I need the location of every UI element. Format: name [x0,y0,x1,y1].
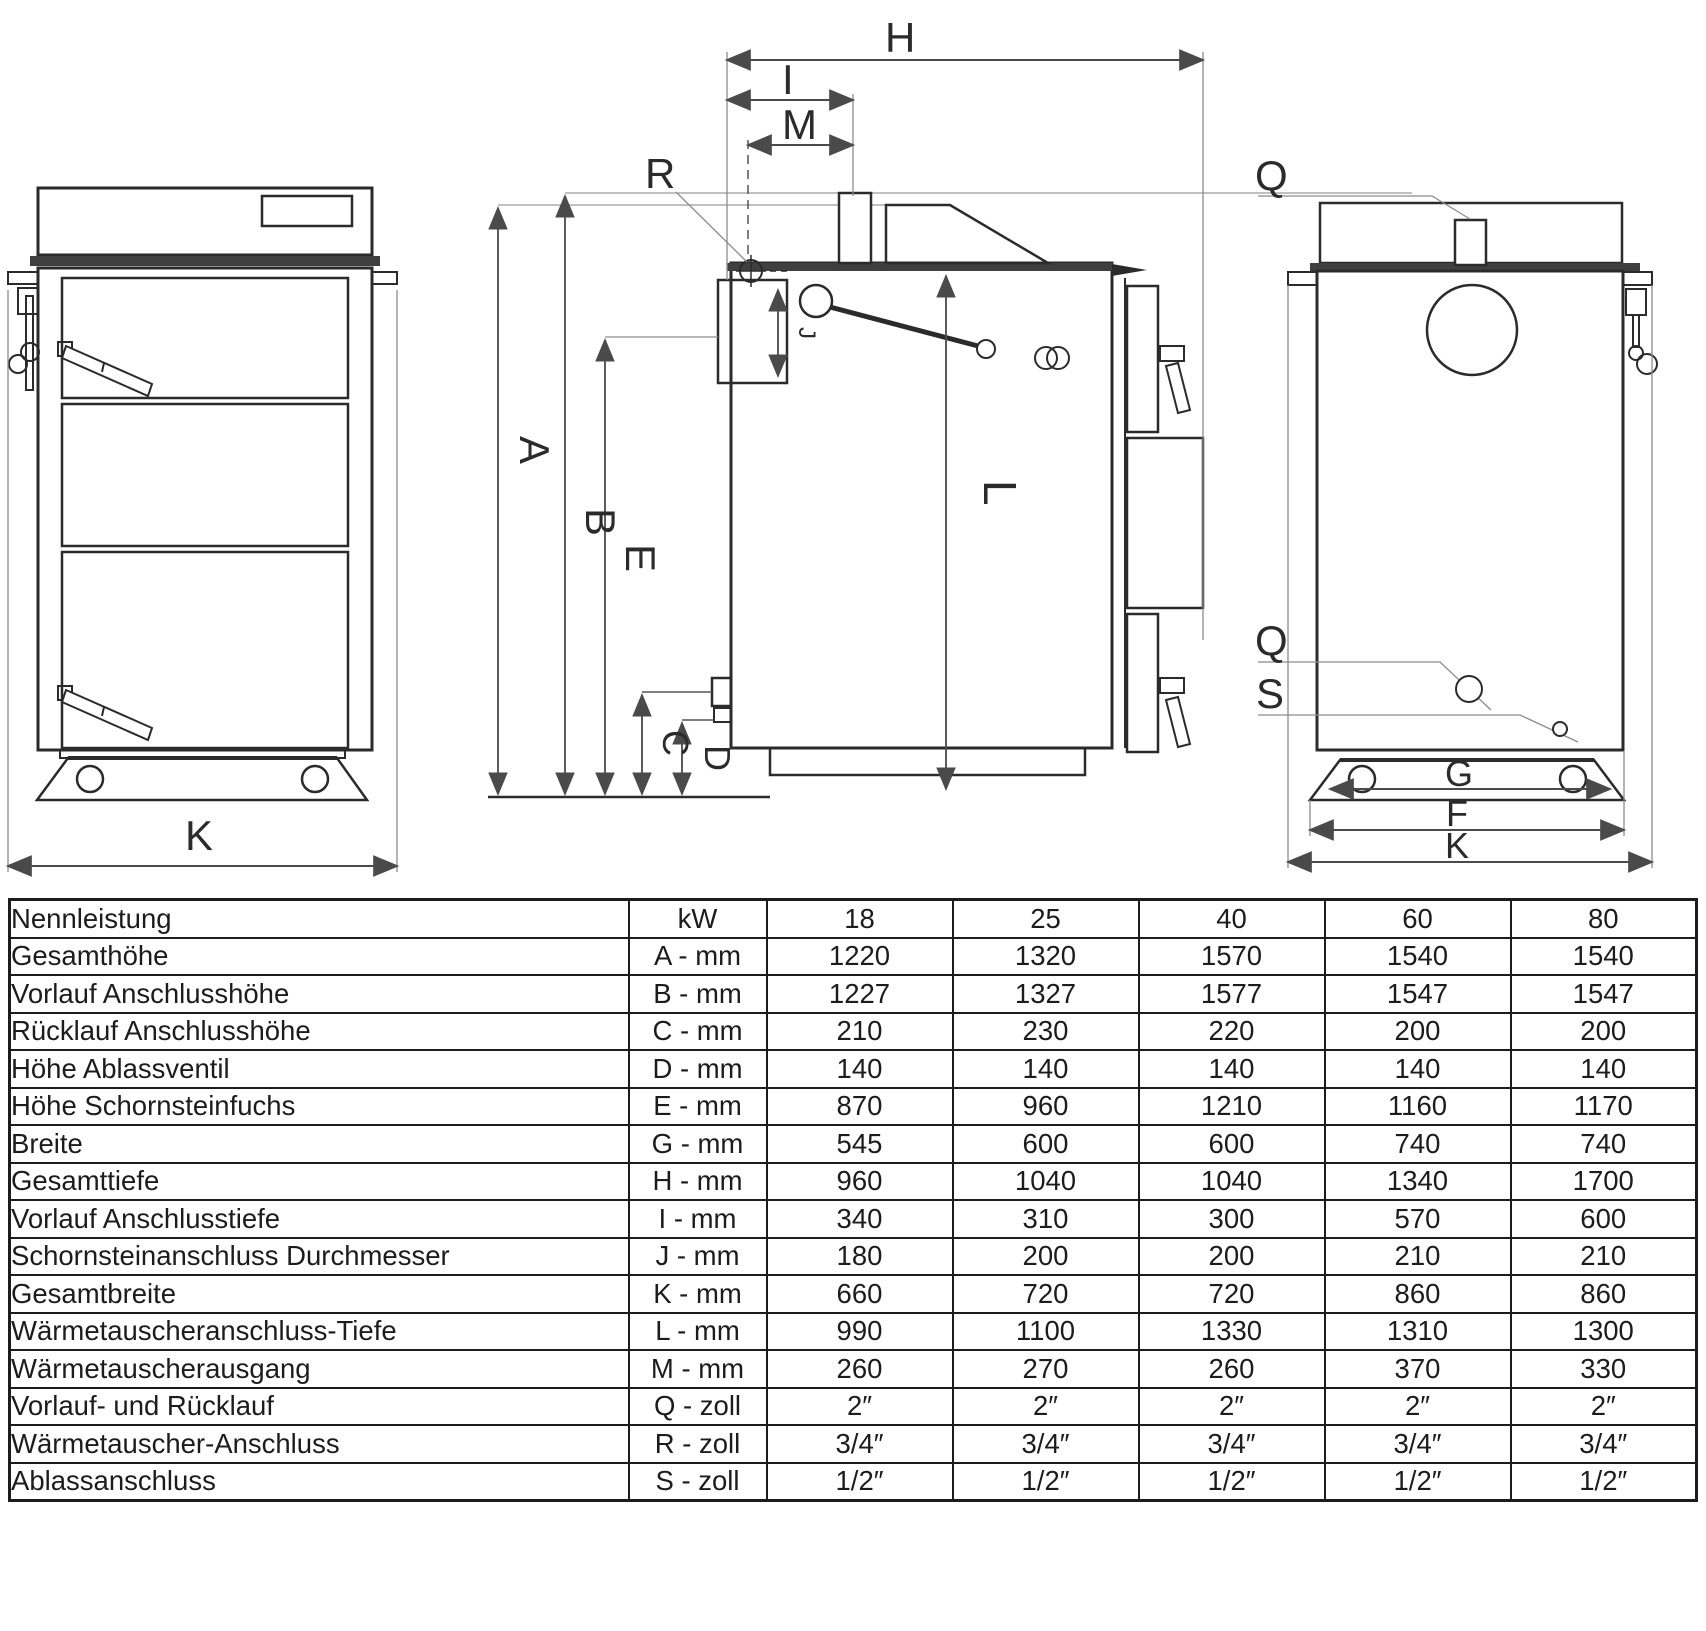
spec-label-cell: Breite [10,1125,629,1163]
spec-value-cell: 310 [953,1200,1139,1238]
table-row: BreiteG - mm545600600740740 [10,1125,1697,1163]
spec-label-cell: Vorlauf- und Rücklauf [10,1388,629,1426]
spec-value-cell: 1/2″ [1325,1463,1511,1501]
spec-value-cell: 1170 [1511,1088,1697,1126]
spec-value-cell: 870 [767,1088,953,1126]
spec-unit-cell: R - zoll [629,1425,767,1463]
front-top-cap [38,188,372,255]
dim-label-q-top: Q [1255,152,1288,199]
spec-label-cell: Wärmetauscherausgang [10,1350,629,1388]
rear-tab-left [1288,272,1317,285]
leader-Q-top [1258,196,1470,219]
spec-value-cell: 210 [1511,1238,1697,1276]
spec-value-cell: 1040 [1139,1163,1325,1201]
spec-value-cell: 1327 [953,975,1139,1013]
spec-value-cell: 570 [1325,1200,1511,1238]
spec-unit-cell: Q - zoll [629,1388,767,1426]
dim-label-b: B [577,508,624,536]
drain-connection [1553,722,1567,736]
spec-unit-cell: S - zoll [629,1463,767,1501]
table-row: Wärmetauscher-AnschlussR - zoll3/4″3/4″3… [10,1425,1697,1463]
spec-label-cell: Gesamtbreite [10,1275,629,1313]
side-pedestal [770,748,1085,775]
spec-value-cell: 210 [767,1013,953,1051]
spec-unit-cell: G - mm [629,1125,767,1163]
side-door-bottom [1127,614,1158,752]
technical-datasheet: K [0,0,1706,1631]
header-label: Nennleistung [10,900,629,938]
dim-label-q-bottom: Q [1255,617,1288,664]
spec-value-cell: 1570 [1139,938,1325,976]
dim-label-g: G [1445,753,1473,794]
spec-value-cell: 3/4″ [953,1425,1139,1463]
spec-value-cell: 1300 [1511,1313,1697,1351]
table-header-row: Nennleistung kW 18 25 40 60 80 [10,900,1697,938]
vorlauf-stub-rear [1455,220,1486,265]
spec-label-cell: Wärmetauscher-Anschluss [10,1425,629,1463]
spec-value-cell: 1/2″ [1511,1463,1697,1501]
front-base-hole-right [302,766,328,792]
spec-value-cell: 270 [953,1350,1139,1388]
header-unit: kW [629,900,767,938]
dim-label-k-rear: K [1445,825,1469,866]
spec-value-cell: 1100 [953,1313,1139,1351]
spec-value-cell: 600 [1511,1200,1697,1238]
dim-label-k-front: K [185,812,213,859]
spec-unit-cell: C - mm [629,1013,767,1051]
spec-value-cell: 140 [767,1050,953,1088]
table-row: GesamtbreiteK - mm660720720860860 [10,1275,1697,1313]
header-kw-value: 40 [1139,900,1325,938]
spec-value-cell: 260 [1139,1350,1325,1388]
vorlauf-stub-side [839,193,871,263]
front-base-hole-left [77,766,103,792]
dim-label-m: M [782,101,817,148]
boiler-dimension-drawing: K [0,0,1706,893]
spec-value-cell: 1330 [1139,1313,1325,1351]
spec-value-cell: 3/4″ [767,1425,953,1463]
flue-opening [1427,285,1517,375]
front-body [38,268,372,750]
spec-value-cell: 1227 [767,975,953,1013]
header-kw-value: 80 [1511,900,1697,938]
spec-value-cell: 1/2″ [953,1463,1139,1501]
spec-value-cell: 1540 [1511,938,1697,976]
spec-value-cell: 210 [1325,1238,1511,1276]
spec-value-cell: 1340 [1325,1163,1511,1201]
ruecklauf-connection [1456,676,1482,702]
damper-lever [800,285,995,358]
spec-unit-cell: A - mm [629,938,767,976]
table-row: Schornsteinanschluss DurchmesserJ - mm18… [10,1238,1697,1276]
spec-value-cell: 1577 [1139,975,1325,1013]
leader-S [1258,715,1578,742]
spec-value-cell: 1/2″ [767,1463,953,1501]
spec-unit-cell: B - mm [629,975,767,1013]
spec-label-cell: Rücklauf Anschlusshöhe [10,1013,629,1051]
table-row: GesamttiefeH - mm9601040104013401700 [10,1163,1697,1201]
control-panel [262,196,352,226]
dim-label-j: J [793,327,820,339]
spec-value-cell: 1700 [1511,1163,1697,1201]
spec-value-cell: 2″ [953,1388,1139,1426]
spec-value-cell: 3/4″ [1511,1425,1697,1463]
front-door-top [62,278,348,398]
spec-label-cell: Vorlauf Anschlusshöhe [10,975,629,1013]
spec-unit-cell: I - mm [629,1200,767,1238]
table-row: Höhe AblassventilD - mm140140140140140 [10,1050,1697,1088]
leader-R [676,192,747,262]
dim-label-c: C [655,730,696,756]
spec-value-cell: 860 [1511,1275,1697,1313]
spec-value-cell: 545 [767,1125,953,1163]
table-row: Vorlauf AnschlusstiefeI - mm340310300570… [10,1200,1697,1238]
table-row: Höhe SchornsteinfuchsE - mm8709601210116… [10,1088,1697,1126]
spec-value-cell: 1547 [1325,975,1511,1013]
spec-value-cell: 660 [767,1275,953,1313]
table-row: Vorlauf AnschlusshöheB - mm1227132715771… [10,975,1697,1013]
spec-table-body: GesamthöheA - mm12201320157015401540Vorl… [10,938,1697,1501]
spec-value-cell: 200 [953,1238,1139,1276]
dim-label-e: E [617,544,664,572]
rear-tab-right [1623,272,1652,285]
spec-value-cell: 340 [767,1200,953,1238]
spec-value-cell: 600 [1139,1125,1325,1163]
rear-view: Q Q S G F K [1255,152,1657,868]
spec-label-cell: Gesamthöhe [10,938,629,976]
spec-value-cell: 720 [953,1275,1139,1313]
front-side-tab-left [8,272,38,284]
spec-value-cell: 960 [953,1088,1139,1126]
spec-value-cell: 220 [1139,1013,1325,1051]
spec-table: Nennleistung kW 18 25 40 60 80 Gesamthöh… [8,898,1698,1502]
spec-label-cell: Ablassanschluss [10,1463,629,1501]
side-handle-top [1160,346,1190,413]
spec-unit-cell: L - mm [629,1313,767,1351]
header-kw-value: 18 [767,900,953,938]
spec-value-cell: 1040 [953,1163,1139,1201]
dim-label-h: H [885,14,915,61]
plate-tip [1112,264,1147,276]
spec-value-cell: 3/4″ [1325,1425,1511,1463]
spec-value-cell: 1220 [767,938,953,976]
side-door-top [1127,286,1158,432]
spec-label-cell: Vorlauf Anschlusstiefe [10,1200,629,1238]
drain-stub [714,708,731,722]
front-base [37,758,367,800]
spec-value-cell: 1210 [1139,1088,1325,1126]
ruecklauf-stub [712,678,731,706]
table-row: Vorlauf- und RücklaufQ - zoll2″2″2″2″2″ [10,1388,1697,1426]
spec-value-cell: 140 [1511,1050,1697,1088]
flue-collar-side [718,280,787,383]
spec-value-cell: 860 [1325,1275,1511,1313]
spec-value-cell: 1/2″ [1139,1463,1325,1501]
front-side-tab-right [372,272,397,284]
spec-label-cell: Gesamttiefe [10,1163,629,1201]
side-door-middle [1127,438,1203,608]
front-view: K [8,188,397,872]
spec-value-cell: 140 [953,1050,1139,1088]
dim-label-a: A [511,436,558,464]
spec-value-cell: 740 [1325,1125,1511,1163]
spec-unit-cell: E - mm [629,1088,767,1126]
draft-regulator [9,288,39,390]
spec-value-cell: 1540 [1325,938,1511,976]
spec-label-cell: Wärmetauscheranschluss-Tiefe [10,1313,629,1351]
side-hood [886,205,1048,263]
spec-value-cell: 3/4″ [1139,1425,1325,1463]
door-handle-bottom [58,686,152,740]
front-top-band [30,256,380,266]
spec-label-cell: Höhe Schornsteinfuchs [10,1088,629,1126]
spec-value-cell: 370 [1325,1350,1511,1388]
spec-value-cell: 2″ [1511,1388,1697,1426]
dim-label-i: I [782,56,794,103]
spec-value-cell: 960 [767,1163,953,1201]
spec-value-cell: 720 [1139,1275,1325,1313]
spec-unit-cell: J - mm [629,1238,767,1276]
spec-value-cell: 2″ [767,1388,953,1426]
spec-value-cell: 140 [1139,1050,1325,1088]
spec-value-cell: 300 [1139,1200,1325,1238]
front-door-middle [62,404,348,546]
spec-value-cell: 1547 [1511,975,1697,1013]
spec-unit-cell: K - mm [629,1275,767,1313]
table-row: AblassanschlussS - zoll1/2″1/2″1/2″1/2″1… [10,1463,1697,1501]
dim-label-d: D [697,745,738,771]
spec-value-cell: 1310 [1325,1313,1511,1351]
spec-value-cell: 230 [953,1013,1139,1051]
spec-value-cell: 180 [767,1238,953,1276]
hinge-pin [1035,347,1069,369]
dim-label-r: R [645,150,675,197]
spec-value-cell: 200 [1325,1013,1511,1051]
table-row: GesamthöheA - mm12201320157015401540 [10,938,1697,976]
spec-label-cell: Höhe Ablassventil [10,1050,629,1088]
spec-unit-cell: H - mm [629,1163,767,1201]
spec-value-cell: 200 [1511,1013,1697,1051]
spec-value-cell: 740 [1511,1125,1697,1163]
spec-value-cell: 200 [1139,1238,1325,1276]
header-kw-value: 25 [953,900,1139,938]
header-kw-value: 60 [1325,900,1511,938]
spec-value-cell: 990 [767,1313,953,1351]
spec-unit-cell: M - mm [629,1350,767,1388]
dim-label-s: S [1256,670,1284,717]
spec-value-cell: 1160 [1325,1088,1511,1126]
table-row: WärmetauscherausgangM - mm26027026037033… [10,1350,1697,1388]
spec-unit-cell: D - mm [629,1050,767,1088]
spec-value-cell: 2″ [1325,1388,1511,1426]
side-handle-bottom [1160,678,1190,747]
spec-value-cell: 140 [1325,1050,1511,1088]
door-handle-top [58,342,152,396]
spec-value-cell: 1320 [953,938,1139,976]
spec-value-cell: 330 [1511,1350,1697,1388]
spec-label-cell: Schornsteinanschluss Durchmesser [10,1238,629,1276]
table-row: Rücklauf AnschlusshöheC - mm210230220200… [10,1013,1697,1051]
dim-label-l: L [974,480,1026,506]
spec-value-cell: 600 [953,1125,1139,1163]
table-row: Wärmetauscheranschluss-TiefeL - mm990110… [10,1313,1697,1351]
spec-value-cell: 260 [767,1350,953,1388]
spec-value-cell: 2″ [1139,1388,1325,1426]
